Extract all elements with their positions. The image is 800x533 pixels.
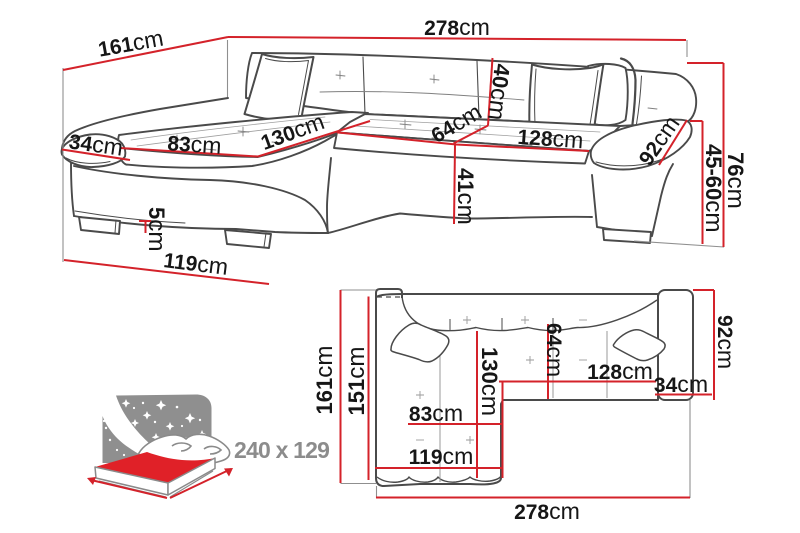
- svg-text:278cm: 278cm: [424, 14, 490, 40]
- svg-text:83cm: 83cm: [409, 400, 463, 426]
- svg-text:119cm: 119cm: [162, 246, 229, 280]
- svg-text:119cm: 119cm: [409, 443, 474, 469]
- svg-text:64cm: 64cm: [542, 323, 568, 377]
- svg-text:130cm: 130cm: [476, 347, 503, 416]
- svg-text:161cm: 161cm: [96, 25, 165, 62]
- svg-text:41cm: 41cm: [452, 168, 479, 225]
- svg-text:161cm: 161cm: [311, 346, 338, 415]
- svg-text:278cm: 278cm: [514, 498, 580, 524]
- svg-text:92cm: 92cm: [713, 315, 739, 369]
- svg-text:76cm: 76cm: [722, 152, 749, 209]
- svg-text:34cm: 34cm: [654, 371, 708, 397]
- svg-text:128cm: 128cm: [517, 123, 584, 154]
- svg-text:240 x 129: 240 x 129: [234, 437, 329, 463]
- svg-text:151cm: 151cm: [343, 347, 370, 416]
- svg-text:128cm: 128cm: [587, 358, 653, 384]
- svg-text:83cm: 83cm: [167, 129, 223, 159]
- svg-text:5cm: 5cm: [143, 207, 170, 252]
